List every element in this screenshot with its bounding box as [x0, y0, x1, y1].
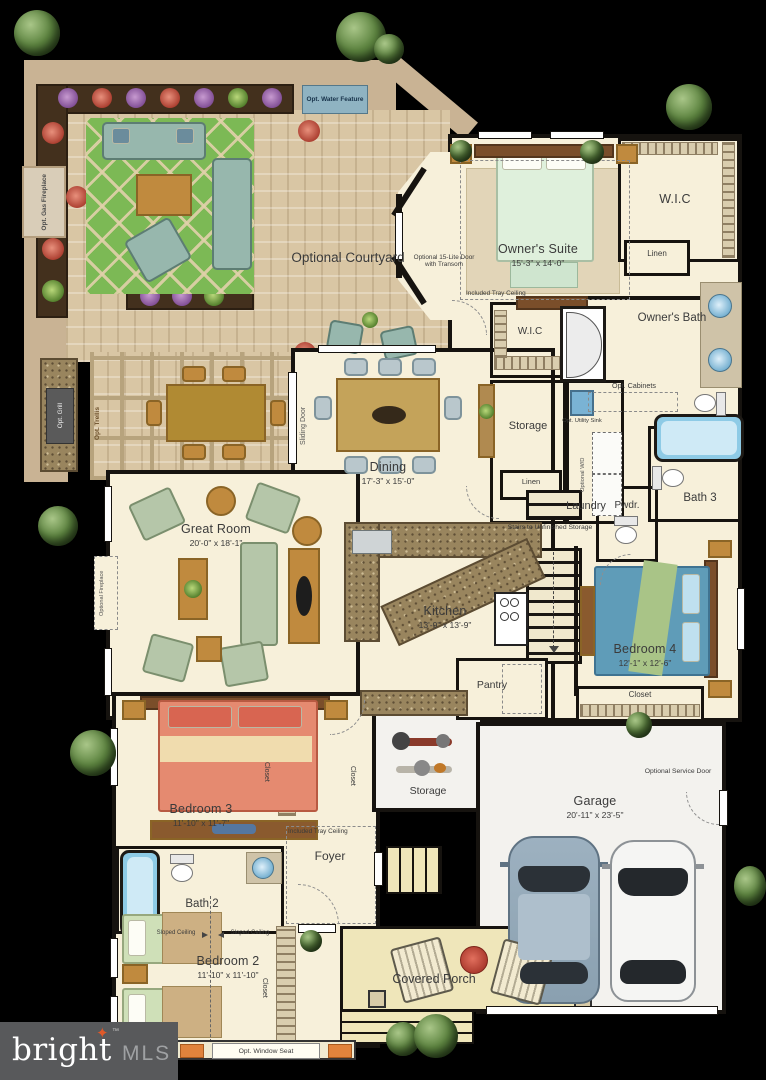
gas-fireplace-box: Opt. Gas Fireplace: [22, 166, 66, 238]
outdoor-chair: [182, 366, 206, 382]
garage-name: Garage: [574, 794, 617, 808]
bedroom4-label: Bedroom 4 12'-1" x 12'-6": [580, 640, 710, 669]
bedroom3-dims: 11'-10" x 11'-7": [136, 819, 266, 829]
window: [104, 648, 112, 696]
pillow: [168, 706, 232, 728]
logo-mls-text: MLS: [122, 1042, 171, 1066]
owners-suite-label: Owner's Suite 15'-3" x 14'-0": [468, 240, 608, 269]
window: [478, 131, 532, 139]
window: [104, 486, 112, 542]
stairs-label: Stairs to Unfinished Storage: [498, 524, 602, 532]
sloped-ceiling-left-label: Sloped Ceiling: [150, 930, 202, 937]
window-seat-cushion: [180, 1044, 204, 1058]
closet-hanger-rod: [276, 926, 296, 1044]
outdoor-chair: [146, 400, 162, 426]
tree: [38, 506, 78, 546]
outdoor-chair: [270, 400, 286, 426]
arrow-left-icon: [218, 932, 224, 938]
logo-star-icon: ✦: [96, 1024, 109, 1042]
shrub: [450, 140, 472, 162]
flower-pot: [66, 186, 88, 208]
dining-chair: [344, 358, 368, 376]
garage-dims: 20'-11" x 23'-5": [540, 811, 650, 821]
bedroom4-dims: 12'-1" x 12'-6": [580, 659, 710, 669]
covered-porch-label: Covered Porch: [354, 972, 514, 986]
gr-plant: [184, 580, 202, 598]
bed2-nightstand: [122, 964, 148, 984]
outdoor-dining-table: [166, 384, 266, 442]
bedroom3-label: Bedroom 3 11'-10" x 11'-7": [136, 800, 266, 829]
car-left-roof: [518, 894, 590, 960]
bedroom4-closet-label: Closet: [596, 691, 684, 700]
bed4-nightstand: [708, 680, 732, 698]
flower: [92, 88, 112, 108]
great-room-label: Great Room 20'-0" x 18'-1": [146, 520, 286, 549]
car-left-rear-window: [520, 962, 588, 984]
outdoor-chair: [222, 366, 246, 382]
window: [110, 938, 118, 978]
toilet-bowl: [662, 469, 684, 487]
flower: [42, 238, 64, 260]
tree: [374, 34, 404, 64]
bedroom3-name: Bedroom 3: [170, 802, 233, 816]
pillow: [128, 920, 146, 956]
wic-hanger-rod: [722, 142, 735, 258]
bed3-nightstand: [122, 700, 146, 720]
wic-hall-label: W.I.C: [500, 326, 560, 337]
bed4-nightstand: [708, 540, 732, 558]
floor-plan: Opt. Water Feature Opt. Gas Fireplace Op…: [0, 0, 766, 1080]
bedroom2-label: Bedroom 2 11'-10" x 11'-10": [160, 952, 296, 981]
dining-chair: [314, 396, 332, 420]
owners-tray-ceiling: [460, 160, 630, 300]
garage-entry-steps: [386, 846, 442, 894]
trellis-label: Opt. Trellis: [94, 388, 101, 458]
buffet-plant: [479, 404, 494, 419]
pillow: [112, 128, 130, 144]
bath2-label: Bath 2: [162, 898, 242, 911]
dining-chair: [378, 358, 402, 376]
dining-chair: [412, 358, 436, 376]
bike-wheel: [414, 760, 430, 776]
linen-top-label: Linen: [628, 250, 686, 259]
gr-sofa: [240, 542, 278, 646]
tree: [734, 866, 766, 906]
sink: [708, 348, 732, 372]
shrub: [300, 930, 322, 952]
foyer-label: Foyer: [290, 850, 370, 863]
window: [550, 131, 604, 139]
toilet-tank: [614, 516, 638, 526]
garage-label: Garage 20'-11" x 23'-5": [540, 792, 650, 821]
foyer-closet-label: Closet: [348, 744, 356, 808]
tree: [70, 730, 116, 776]
outdoor-chair: [182, 444, 206, 460]
sloped-ceiling-right-label: Sloped Ceiling: [224, 930, 276, 937]
storage-garage-label: Storage: [392, 786, 464, 798]
bedroom4-wall-west: [574, 546, 578, 696]
utility-sink-label: Opt. Utility Sink: [556, 418, 608, 424]
range-burner: [510, 598, 519, 607]
bedroom2-dims: 11'-10" x 11'-10": [160, 971, 296, 981]
range-burner: [510, 612, 519, 621]
kitchen-name: Kitchen: [423, 604, 466, 618]
bath3-label: Bath 3: [662, 492, 738, 505]
garage-entry-door: [374, 852, 383, 886]
pillow: [682, 574, 700, 614]
window: [318, 345, 436, 353]
toilet-tank: [652, 466, 662, 490]
flower: [42, 280, 64, 302]
flower: [194, 88, 214, 108]
flower-pot: [298, 120, 320, 142]
porch-post: [368, 990, 386, 1008]
kitchen-sink: [352, 530, 392, 554]
bathtub: [654, 414, 744, 462]
opt-cabinets-label: Opt. Cabinets: [588, 382, 680, 390]
bed3-blanket-fold: [160, 736, 312, 762]
grill-label: Opt. Grill: [57, 403, 64, 428]
sliding-door: [288, 372, 297, 464]
porch-table: [460, 946, 488, 974]
brightmls-logo: bright ✦ ™ MLS: [0, 1022, 178, 1080]
pillow: [238, 706, 302, 728]
great-room-name: Great Room: [181, 522, 251, 536]
car-left-windshield: [518, 866, 590, 892]
courtyard-sofa-right: [212, 158, 252, 270]
sink: [252, 857, 274, 879]
gr-chair: [219, 640, 269, 687]
dining-label: Dining 17'-3" x 15'-0": [318, 458, 458, 487]
pillow: [176, 128, 194, 144]
service-door-label: Optional Service Door: [636, 768, 720, 776]
courtyard-coffee-table: [136, 174, 192, 216]
great-room-dims: 20'-0" x 18'-1": [146, 539, 286, 549]
stairs-arrow-line: [553, 552, 554, 648]
shrub: [626, 712, 652, 738]
service-door: [719, 790, 728, 826]
dining-dims: 17'-3" x 15'-0": [318, 477, 458, 487]
foyer-tray-label: Included Tray Ceiling: [288, 828, 366, 835]
bedroom2-closet-label: Closet: [260, 958, 268, 1018]
arrow-right-icon: [202, 932, 208, 938]
flower: [58, 88, 78, 108]
outdoor-chair: [222, 444, 246, 460]
car-right-rear-window: [620, 960, 686, 984]
flower: [126, 88, 146, 108]
toilet-bowl: [694, 394, 716, 412]
gr-side-table: [292, 516, 322, 546]
shrub: [580, 140, 604, 164]
tree: [14, 10, 60, 56]
kitchen-label: Kitchen 13'-9" x 13'-9": [380, 602, 510, 631]
gr-tv: [296, 576, 312, 616]
flower: [228, 88, 248, 108]
kitchen-counter-bottom: [360, 690, 468, 716]
opt-cabinets-outline: [588, 392, 678, 412]
sliding-door-label: Sliding Door: [300, 390, 308, 462]
window-seat-label-box: Opt. Window Seat: [212, 1043, 320, 1059]
stairs-arrow-head: [549, 646, 559, 653]
patio-plant: [362, 312, 378, 328]
flower: [160, 88, 180, 108]
pantry-label: Pantry: [458, 680, 526, 692]
bike-wheel: [436, 734, 450, 748]
gr-side-table: [206, 486, 236, 516]
optional-fireplace-box: [94, 556, 118, 630]
logo-tm: ™: [112, 1028, 119, 1035]
window-seat-cushion: [328, 1044, 352, 1058]
linen-hall-label: Linen: [504, 478, 558, 486]
grill-box: Opt. Grill: [46, 388, 74, 444]
car-right-windshield: [618, 868, 688, 896]
pwdr-label: Pwdr.: [600, 500, 654, 511]
owners-bath-label: Owner's Bath: [630, 312, 714, 325]
car-mirror: [500, 862, 510, 867]
flower: [42, 122, 64, 144]
dining-centerpiece: [372, 406, 406, 424]
garage-door: [486, 1006, 718, 1015]
owners-tray-label: Included Tray Ceiling: [466, 290, 546, 297]
car-mirror: [694, 864, 704, 869]
washer: [592, 432, 622, 474]
owners-suite-dims: 15'-3" x 14'-0": [468, 259, 608, 269]
toilet-bowl: [615, 526, 637, 544]
flower: [262, 88, 282, 108]
window-seat-label: Opt. Window Seat: [239, 1048, 294, 1055]
wic-top-label: W.I.C: [630, 192, 720, 206]
window: [737, 588, 745, 650]
toilet-tank: [716, 392, 726, 416]
dining-chair: [444, 396, 462, 420]
shrub: [414, 1014, 458, 1058]
optional-fireplace-label: Optional Fireplace: [99, 560, 105, 626]
water-feature-label: Opt. Water Feature: [306, 96, 364, 103]
dining-name: Dining: [370, 460, 407, 474]
car-mirror: [602, 864, 612, 869]
wic-hanger-rod: [494, 356, 562, 370]
bedroom2-name: Bedroom 2: [197, 954, 260, 968]
gas-fireplace-label: Opt. Gas Fireplace: [41, 174, 48, 230]
tree: [666, 84, 712, 130]
kitchen-dims: 13'-9" x 13'-9": [380, 621, 510, 631]
bedroom3-closet-label: Closet: [262, 740, 270, 804]
gr-side-table: [196, 636, 222, 662]
owners-suite-name: Owner's Suite: [498, 242, 578, 256]
bike-wheel: [392, 732, 410, 750]
bike-seat: [434, 763, 446, 773]
toilet-bowl: [171, 864, 193, 882]
water-feature-box: Opt. Water Feature: [302, 85, 368, 114]
storage-hall-label: Storage: [492, 420, 564, 432]
toilet-tank: [170, 854, 194, 864]
bedroom4-name: Bedroom 4: [614, 642, 677, 656]
